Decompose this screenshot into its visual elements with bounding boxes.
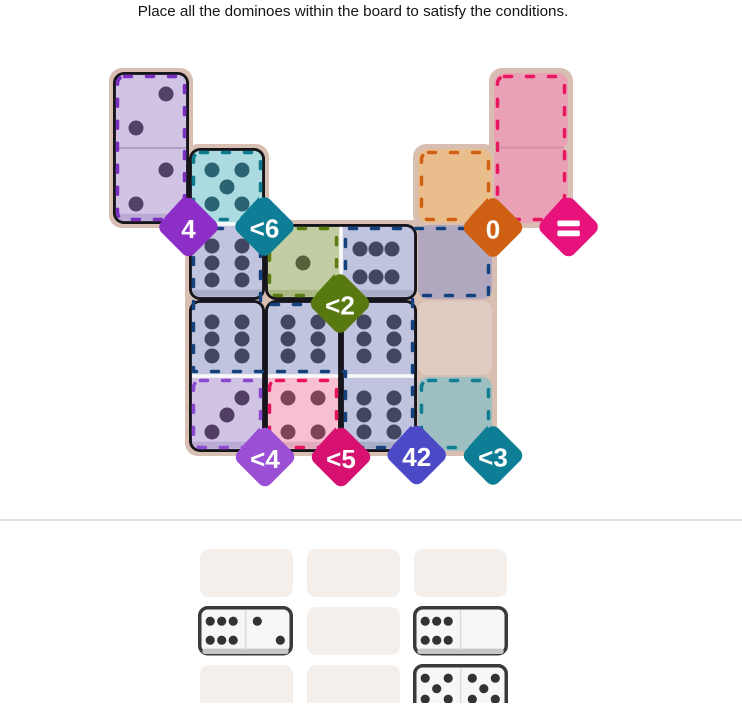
svg-text:<4: <4 (250, 444, 280, 474)
svg-text:<3: <3 (478, 443, 508, 473)
svg-text:42: 42 (402, 442, 431, 472)
svg-text:<6: <6 (250, 214, 280, 244)
svg-text:4: 4 (181, 214, 196, 244)
svg-text:0: 0 (486, 215, 500, 245)
svg-text:<2: <2 (325, 291, 355, 321)
svg-text:Place all the dominoes within: Place all the dominoes within the board … (138, 3, 569, 20)
svg-text:<5: <5 (326, 444, 356, 474)
